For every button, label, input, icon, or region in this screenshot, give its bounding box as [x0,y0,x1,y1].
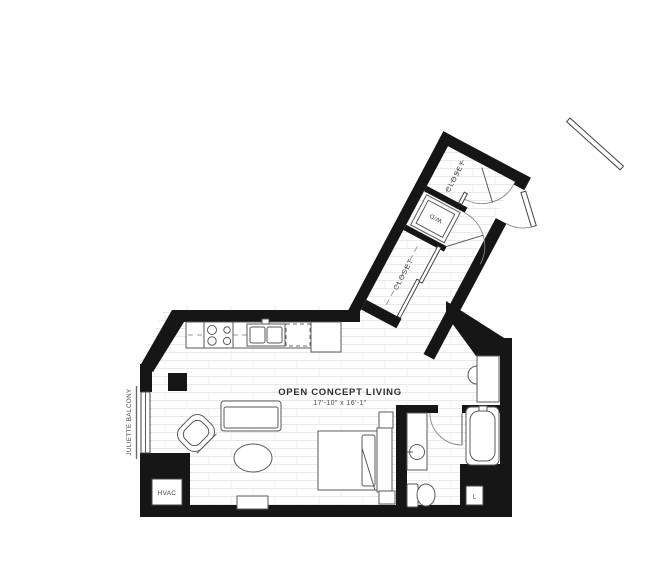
living-room-label: OPEN CONCEPT LIVING [278,387,402,398]
toilet-bowl [417,484,435,506]
structural-column [168,373,187,391]
headboard [377,428,392,492]
bath-bedroom-wall [396,405,407,506]
refrigerator [311,322,341,352]
balcony-label: JULIETTE BALCONY [126,388,133,456]
entry-vanity [477,356,499,402]
left-wall-upper-stub [140,364,152,392]
bottom-wall [140,505,512,517]
hvac-wall-top [142,453,190,479]
coffee-table [234,444,272,472]
bed-pillow [362,435,375,486]
bathroom-vanity [407,413,427,470]
hvac-wall-right [182,479,190,507]
bath-top-wall-left [396,405,438,413]
juliette-balcony: JULIETTE BALCONY [126,386,150,459]
linen-closet-label: L [473,494,477,501]
toilet-tank [407,484,418,507]
right-wall [500,338,512,517]
exterior-corridor-wall-line [567,118,624,170]
floor-plan-drawing: CLOSET W/D CLOSET [0,0,650,585]
sink-faucet-icon [262,319,269,324]
nightstand-bottom [379,491,395,504]
dishwasher [286,324,310,346]
kitchen [186,319,341,352]
media-console [237,496,268,509]
hvac-label: HVAC [158,490,177,497]
balcony-label-group: JULIETTE BALCONY [126,388,133,456]
bathtub-faucet-icon [479,406,487,411]
floor-plan-page: CLOSET W/D CLOSET [0,0,650,585]
sofa [221,401,281,431]
living-room-dimensions: 17'-10" x 16'-1" [313,400,366,407]
entry-door-leaf [521,191,536,227]
hvac-room: HVAC [152,479,182,505]
nightstand-top [379,412,393,428]
